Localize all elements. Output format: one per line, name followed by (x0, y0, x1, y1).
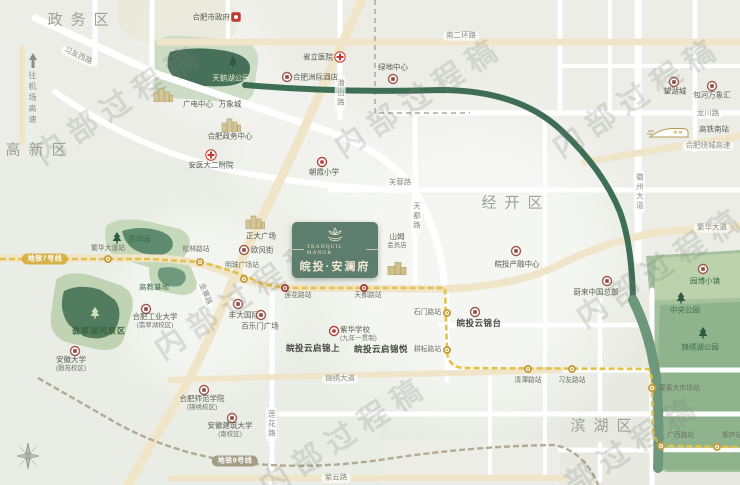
poi-label: 安徽大学(磬苑校区) (56, 356, 86, 372)
poi-label: 合肥政务中心 (208, 133, 253, 142)
poi-label: 皖投云启锦悦 (354, 345, 408, 355)
poi-label: 安医大二附院 (189, 162, 234, 171)
metro-station-label: 耕耘路站 (414, 346, 441, 354)
poi-icon (698, 264, 709, 275)
poi-label: 合肥师范学院(锦绣校区) (180, 395, 225, 411)
train-icon (647, 125, 689, 139)
poi-icon (470, 307, 481, 318)
poi-label: 锦绣湖公园 (681, 344, 719, 353)
poi-label: 紫华学校(九年一贯制) (340, 326, 377, 342)
poi-icon (233, 299, 244, 310)
building-icon (245, 215, 265, 229)
metro-station-icon (443, 346, 451, 354)
metro-station-icon (360, 284, 368, 292)
poi-icon (256, 310, 267, 321)
metro-station-label: 习友路站 (558, 377, 585, 385)
metro-station-label: 石门路站 (414, 309, 441, 317)
road-label: 徽州大道 (634, 170, 645, 214)
metro-station-label: 松林路站 (182, 246, 209, 254)
metro-station-icon (657, 442, 665, 450)
metro-station-label: 要素大市场站 (659, 385, 700, 393)
poi-sublabel: (磬苑校区) (56, 365, 86, 372)
metro-station-icon (713, 443, 721, 451)
poi-label: 园博小镇 (690, 278, 720, 287)
poi-label: 天鹅湖公园 (212, 75, 250, 84)
map-canvas: 内部过程稿内部过程稿内部过程稿内部过程稿内部过程稿内部过程稿内部过程稿政务区高新… (0, 0, 740, 485)
road-label: 金寨路 (196, 279, 215, 309)
metro-station-icon (648, 384, 656, 392)
poi-label: 翡翠园 (128, 236, 151, 245)
compass-rose-icon (15, 441, 41, 471)
metro-station-label: 明珠广场站 (225, 262, 259, 270)
poi-label: 翡翠湖风景区 (72, 326, 126, 335)
poi-label: 皖投云锦台 (456, 319, 501, 329)
poi-label: 广电中心 (183, 101, 213, 110)
poi-icon (511, 246, 522, 257)
watermark-text: 内部过程稿 (571, 200, 740, 335)
metro-station-icon (104, 255, 112, 263)
building-icon (221, 118, 241, 132)
tree-icon (676, 292, 686, 304)
airport-highway-note: 往机场高速 (27, 52, 38, 126)
metro-station-icon (281, 284, 289, 292)
district-label: 滨湖区 (570, 417, 639, 434)
poi-label: 百乐门广场 (241, 323, 279, 332)
school-icon (317, 157, 328, 168)
poi-icon (602, 276, 613, 287)
tree-icon (112, 232, 122, 244)
poi-sublabel: 会员店 (387, 242, 407, 249)
project-emblem-icon (325, 227, 345, 242)
metro-station-label: 莲花路站 (284, 292, 311, 300)
metro-station-icon (196, 258, 204, 266)
tree-icon (698, 327, 708, 339)
road-label: 龙川路 (694, 110, 723, 119)
road-label: 锦绣大道 (322, 375, 358, 384)
metro-line7-badge: 地铁7号线 (22, 253, 68, 264)
watermark-text: 内部过程稿 (254, 369, 436, 485)
road-label: 紫云路 (322, 474, 351, 483)
poi-icon (388, 74, 399, 85)
poi-label: 高铁南站 (699, 126, 729, 135)
poi-label: 合肥洲际酒店 (293, 74, 338, 83)
tree-icon (228, 56, 238, 68)
poi-label: 山姆会员店 (387, 233, 407, 249)
poi-sublabel: (翡翠湖校区) (133, 322, 178, 329)
project-name-cn: 皖投·安澜府 (300, 258, 371, 274)
airport-highway-label: 往机场高速 (27, 71, 38, 126)
cross-icon (205, 149, 217, 161)
district-label: 高新区 (5, 141, 74, 158)
poi-icon (239, 245, 250, 256)
poi-label: 包河万象汇 (693, 92, 731, 101)
project-name-en: TRANQUIL MANOR (292, 244, 378, 256)
metro-station-label: 繁华大道站 (91, 245, 125, 253)
poi-sublabel: (九年一贯制) (340, 335, 377, 342)
metro-station-icon (524, 365, 532, 373)
poi-label: 安徽建筑大学(南校区) (208, 422, 253, 438)
road-label: 南二环路 (443, 32, 479, 41)
poi-label: 合肥市政府 (193, 14, 231, 23)
rule-right (366, 249, 378, 250)
project-card: TRANQUIL MANOR 皖投·安澜府 (292, 222, 378, 278)
poi-label: 丰大国际 (229, 312, 259, 321)
metro-station-label: 广西路站 (667, 432, 694, 440)
poi-label: 欧风街 (251, 247, 274, 256)
rule-left (292, 249, 304, 250)
road-label: 莲花路 (266, 407, 277, 442)
poi-label: 省立医院 (303, 54, 333, 63)
road-label: 天都路 (411, 199, 422, 234)
poi-label: 万象城 (219, 101, 242, 110)
up-arrow-icon (28, 52, 38, 69)
poi-label: 正大广场 (246, 233, 276, 242)
school-icon (329, 326, 340, 337)
poi-label: 合肥工业大学(翡翠湖校区) (133, 313, 178, 329)
poi-icon (282, 72, 293, 83)
poi-label: 蔚来中国总部 (574, 289, 619, 298)
metro-station-label: 天都路站 (354, 292, 381, 300)
gov-icon (231, 12, 242, 23)
poi-label: 高教基地 (139, 284, 169, 293)
metro-station-icon (240, 275, 248, 283)
metro-station-label: 清潭路站 (514, 377, 541, 385)
building-icon (153, 88, 173, 102)
road-label: 合肥绕城高速 (683, 142, 734, 151)
district-label: 政务区 (47, 11, 116, 28)
poi-label: 中央公园 (670, 307, 700, 316)
metro-station-icon (443, 309, 451, 317)
metro-station-label: 紫庐站 (722, 432, 740, 440)
poi-label: 皖投产融中心 (495, 261, 540, 270)
treelight-icon (90, 307, 100, 319)
metro-station-icon (568, 365, 576, 373)
sam-icon (387, 261, 407, 276)
road-label: 习友西路 (60, 44, 96, 67)
poi-label: 望湖城 (664, 88, 687, 97)
district-label: 经开区 (481, 194, 550, 211)
poi-sublabel: (锦绣校区) (180, 404, 225, 411)
watermark-text: 内部过程稿 (329, 30, 511, 165)
road-label: 芙蓉路 (386, 179, 415, 188)
poi-label: 绿地中心 (378, 64, 408, 73)
poi-label: 朝霞小学 (309, 169, 339, 178)
metro-line9-badge: 地铁9号线 (212, 455, 258, 466)
cross-icon (334, 51, 346, 63)
road-label: 繁华大道 (694, 224, 730, 233)
poi-label: 皖投云启锦上 (286, 344, 340, 354)
poi-sublabel: (南校区) (208, 431, 253, 438)
